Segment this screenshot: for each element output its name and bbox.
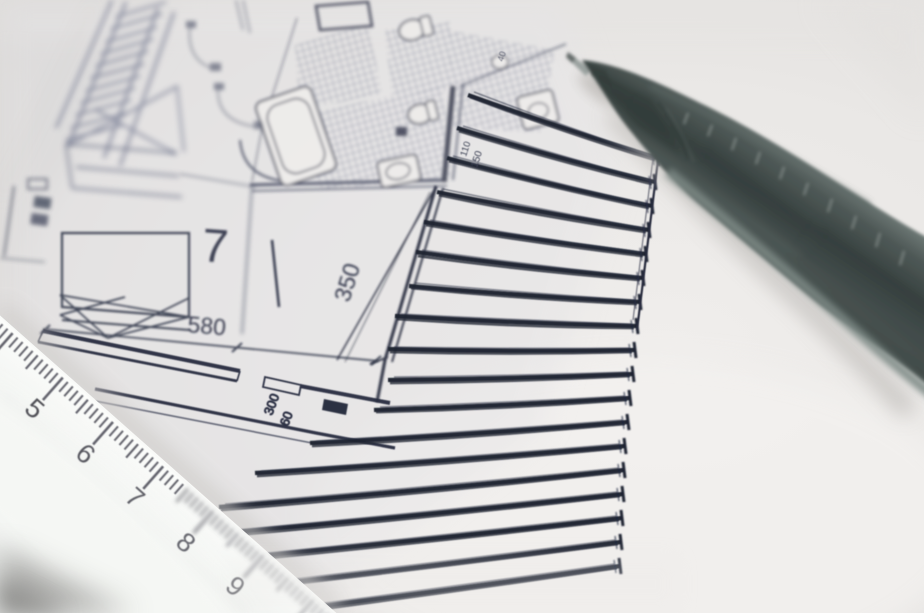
svg-text:580: 580 [187,311,227,340]
svg-text:7: 7 [200,218,230,273]
